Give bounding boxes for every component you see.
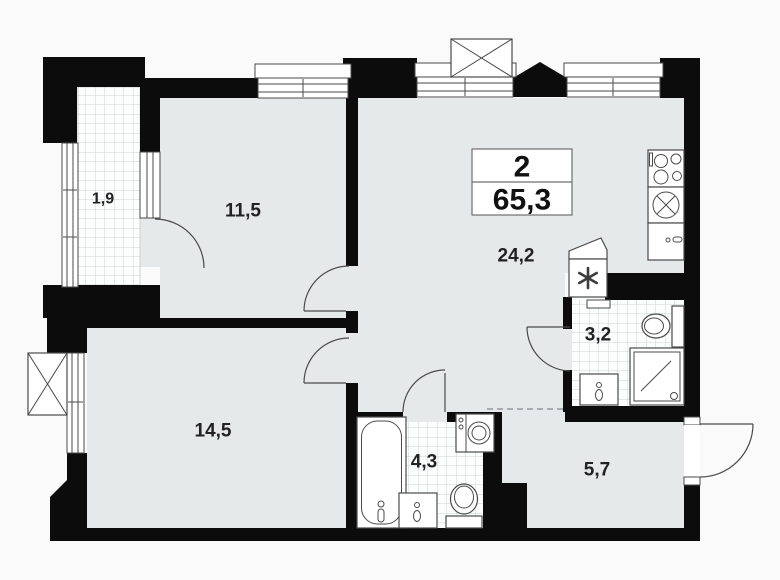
- door-gap: [346, 266, 358, 311]
- window-living-right: [564, 63, 663, 97]
- floor-plan: 2 65,3 1,9 11,5 24,2 3,2 14,5 4,3 5,7: [0, 0, 780, 580]
- washbasin-icon: [580, 374, 618, 405]
- vent-shaft-icon: [451, 39, 512, 77]
- window-bedroom-2: [67, 353, 84, 453]
- window-bedroom-1: [255, 64, 351, 98]
- door-gap: [403, 412, 447, 422]
- door-gap: [346, 333, 358, 383]
- entrance-opening: [684, 425, 700, 477]
- entrance-jamb: [684, 477, 700, 485]
- door-gap: [563, 327, 572, 372]
- window-balcony: [62, 143, 78, 287]
- label-bathroom-large-area: 4,3: [411, 452, 437, 473]
- balcony-tiles: [78, 87, 140, 285]
- kitchen-sink-icon: [648, 187, 684, 223]
- kitchen-counter-icon: [648, 223, 684, 260]
- wall-pier: [513, 62, 567, 97]
- label-bathroom-small-area: 3,2: [585, 325, 611, 346]
- washing-machine-icon: [456, 414, 494, 452]
- total-area: 65,3: [493, 184, 551, 217]
- title-block: 2 65,3: [472, 149, 572, 217]
- rooms-count: 2: [514, 151, 531, 184]
- shelf: [587, 300, 610, 308]
- floor-plan-svg: 2 65,3 1,9 11,5 24,2 3,2 14,5 4,3 5,7: [0, 0, 780, 580]
- label-bedroom-2-area: 14,5: [195, 421, 232, 442]
- entrance-jamb: [684, 417, 700, 425]
- stove-icon: [648, 150, 684, 187]
- label-living-kitchen-area: 24,2: [498, 246, 535, 267]
- shower-icon: [630, 348, 684, 405]
- label-hallway-area: 5,7: [584, 460, 610, 481]
- label-balcony-area: 1,9: [92, 191, 114, 208]
- washbasin-icon: [399, 493, 437, 528]
- door-gap: [140, 218, 160, 267]
- room-living-corridor-floor: [358, 273, 565, 412]
- vent-shaft-icon: [28, 353, 67, 415]
- entrance-door: [700, 424, 753, 477]
- window-balcony-inner: [140, 152, 160, 218]
- label-bedroom-1-area: 11,5: [225, 201, 261, 222]
